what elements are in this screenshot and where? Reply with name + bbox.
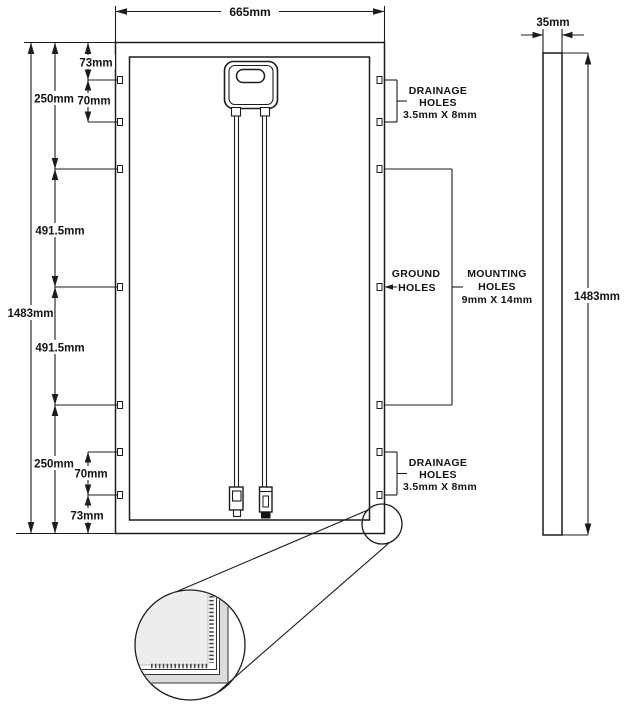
dimension-width-665: 665mm	[116, 3, 385, 43]
callout-ground: GROUND HOLES	[385, 268, 441, 294]
drainage-top-line1: DRAINAGE	[409, 85, 467, 97]
callout-drainage-top: DRAINAGE HOLES 3.5mm X 8mm	[385, 80, 477, 122]
callout-drainage-bottom: DRAINAGE HOLES 3.5mm X 8mm	[385, 452, 477, 495]
mounting-line2: HOLES	[478, 281, 516, 293]
dim-label-total-height: 1483mm	[7, 308, 53, 320]
panel-inner-frame	[130, 57, 370, 520]
mounting-line1: MOUNTING	[467, 268, 527, 280]
solar-panel-dimension-diagram: 665mm 1483mm 250mm 491.5mm 49	[0, 0, 625, 705]
diagram-canvas: 665mm 1483mm 250mm 491.5mm 49	[0, 0, 625, 705]
edge-hole-markers	[118, 77, 383, 499]
side-profile	[543, 53, 562, 535]
dim-label-250-top: 250mm	[34, 94, 74, 106]
dim-label-side-height: 1483mm	[574, 291, 620, 303]
drainage-top-line3: 3.5mm X 8mm	[403, 109, 477, 121]
cable-gland-left	[232, 108, 241, 117]
junction-box-slot	[237, 70, 265, 83]
drainage-bottom-line2: HOLES	[419, 469, 457, 481]
cable-gland-right	[261, 108, 270, 117]
dimension-line-mounting: 250mm 491.5mm 491.5mm 250mm	[32, 43, 85, 534]
connector-left	[230, 487, 244, 517]
detail-glass	[132, 588, 208, 665]
detail-source-circle	[362, 504, 402, 544]
ground-line2: HOLES	[398, 282, 436, 294]
panel-front-view	[116, 43, 385, 534]
dimension-side-height-1483: 1483mm	[572, 53, 622, 535]
connector-tip	[261, 512, 271, 519]
corner-detail-content	[132, 588, 228, 683]
output-cables	[235, 116, 267, 487]
corner-detail-view	[132, 588, 245, 700]
drainage-bottom-line1: DRAINAGE	[409, 457, 467, 469]
panel-outer-frame	[116, 43, 385, 534]
dim-label-73-top: 73mm	[79, 58, 112, 70]
connector-right	[260, 487, 273, 519]
dim-label-491-upper: 491.5mm	[35, 226, 84, 238]
dim-label-thickness: 35mm	[536, 17, 569, 29]
dim-label-73-bottom: 73mm	[70, 511, 103, 523]
junction-box	[225, 62, 278, 117]
drainage-bottom-line3: 3.5mm X 8mm	[403, 481, 477, 493]
dim-label-width: 665mm	[229, 5, 270, 19]
mounting-line3: 9mm X 14mm	[462, 294, 533, 306]
dim-label-491-lower: 491.5mm	[35, 343, 84, 355]
dimension-thickness-35: 35mm	[521, 17, 584, 53]
ground-line1: GROUND	[392, 268, 441, 280]
dim-label-250-bottom: 250mm	[34, 459, 74, 471]
drainage-top-line2: HOLES	[419, 97, 457, 109]
dim-label-70-top: 70mm	[77, 96, 110, 108]
dim-label-70-bottom: 70mm	[74, 469, 107, 481]
